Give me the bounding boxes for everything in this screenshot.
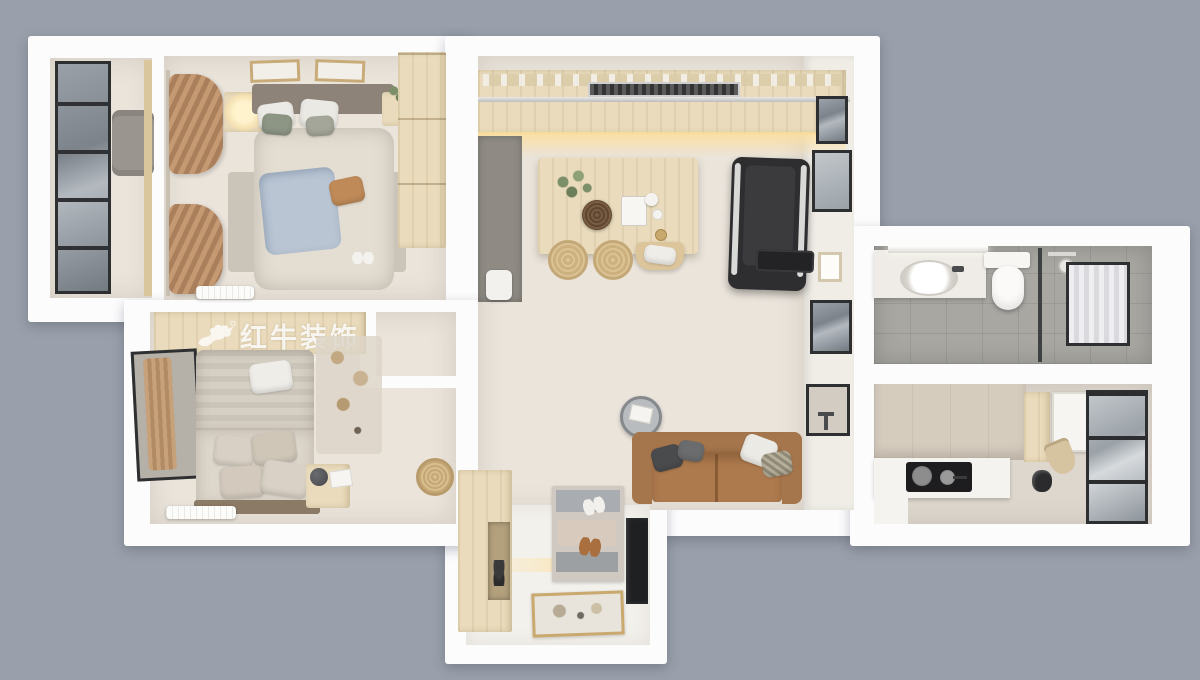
master-curtain-bottom [169, 204, 223, 294]
shoes-brown-pair [577, 536, 603, 557]
wall-frame-mid [812, 150, 852, 212]
niche-faucet [824, 414, 828, 430]
pan-handle [953, 476, 967, 479]
pillow-sage [305, 115, 334, 137]
vanity-sink [900, 260, 958, 296]
rear-kitchen-tiled-wall [874, 384, 1026, 460]
balcony-wood-trim [144, 60, 152, 296]
second-bed-foot-pillow [248, 359, 294, 395]
counter-edge [478, 97, 850, 102]
bathroom-curtain-window [1066, 262, 1130, 346]
wall-art-frame-2 [315, 59, 366, 83]
shower-glass-partition [1038, 248, 1042, 362]
niche-faucet-spout [818, 412, 834, 416]
doormat-print [542, 599, 613, 627]
rattan-pouf [416, 458, 454, 496]
wicker-stool-2 [593, 240, 633, 280]
entry-dark-panel [626, 518, 648, 604]
pass-through-niche [806, 384, 850, 436]
blue-blanket [258, 166, 342, 255]
wall-frame-top [816, 96, 848, 144]
pan-large [912, 466, 932, 486]
teacup [652, 209, 663, 220]
rug-abstract-shapes [320, 342, 378, 446]
teapot [645, 193, 658, 206]
second-bedroom-air-conditioner [166, 506, 236, 519]
sofa-arm-left [632, 432, 652, 504]
nightstand-papers [329, 469, 353, 489]
under-cabinet-glow [478, 132, 846, 158]
second-bed-pillow-3 [219, 465, 265, 500]
range-hood [588, 82, 740, 97]
rear-counter-vertical [874, 458, 908, 524]
serving-tray [621, 196, 647, 226]
second-bedroom-window-curtain [143, 357, 177, 470]
slippers-master [352, 252, 374, 264]
wall-frame-bottom [810, 300, 852, 354]
glass-door-mullions [1086, 390, 1148, 524]
bull-logo-icon [196, 318, 236, 350]
nook-wall-stub-horizontal [372, 376, 472, 388]
trash-bin [486, 270, 512, 300]
plant-pot-bowl [582, 200, 612, 230]
ball-lamp [310, 468, 328, 486]
vanity-faucet [952, 266, 964, 272]
master-wardrobe-seams [398, 52, 446, 248]
master-curtain-top [169, 74, 223, 174]
shoes-in-cabinet [491, 560, 507, 586]
second-bed-pillow-1 [213, 434, 256, 468]
wicker-stool-1 [548, 240, 588, 280]
wood-coaster [655, 229, 667, 241]
shower-head-arm [1048, 252, 1076, 256]
kettle [1032, 470, 1052, 492]
wall-art-frame-1 [250, 59, 301, 83]
pillow-green [261, 113, 293, 137]
wall-art-small [818, 252, 842, 282]
master-air-conditioner [196, 286, 254, 299]
treadmill-console [756, 249, 815, 273]
balcony-glass-mullions [55, 61, 111, 294]
apartment-render: 红牛装饰 HONG NIU DECORATION [0, 0, 1200, 680]
second-bed-pillow-4 [260, 459, 310, 499]
sofa-seat-split [715, 454, 718, 502]
vanity-mirror-light [888, 246, 988, 253]
toilet-bowl [992, 266, 1024, 310]
